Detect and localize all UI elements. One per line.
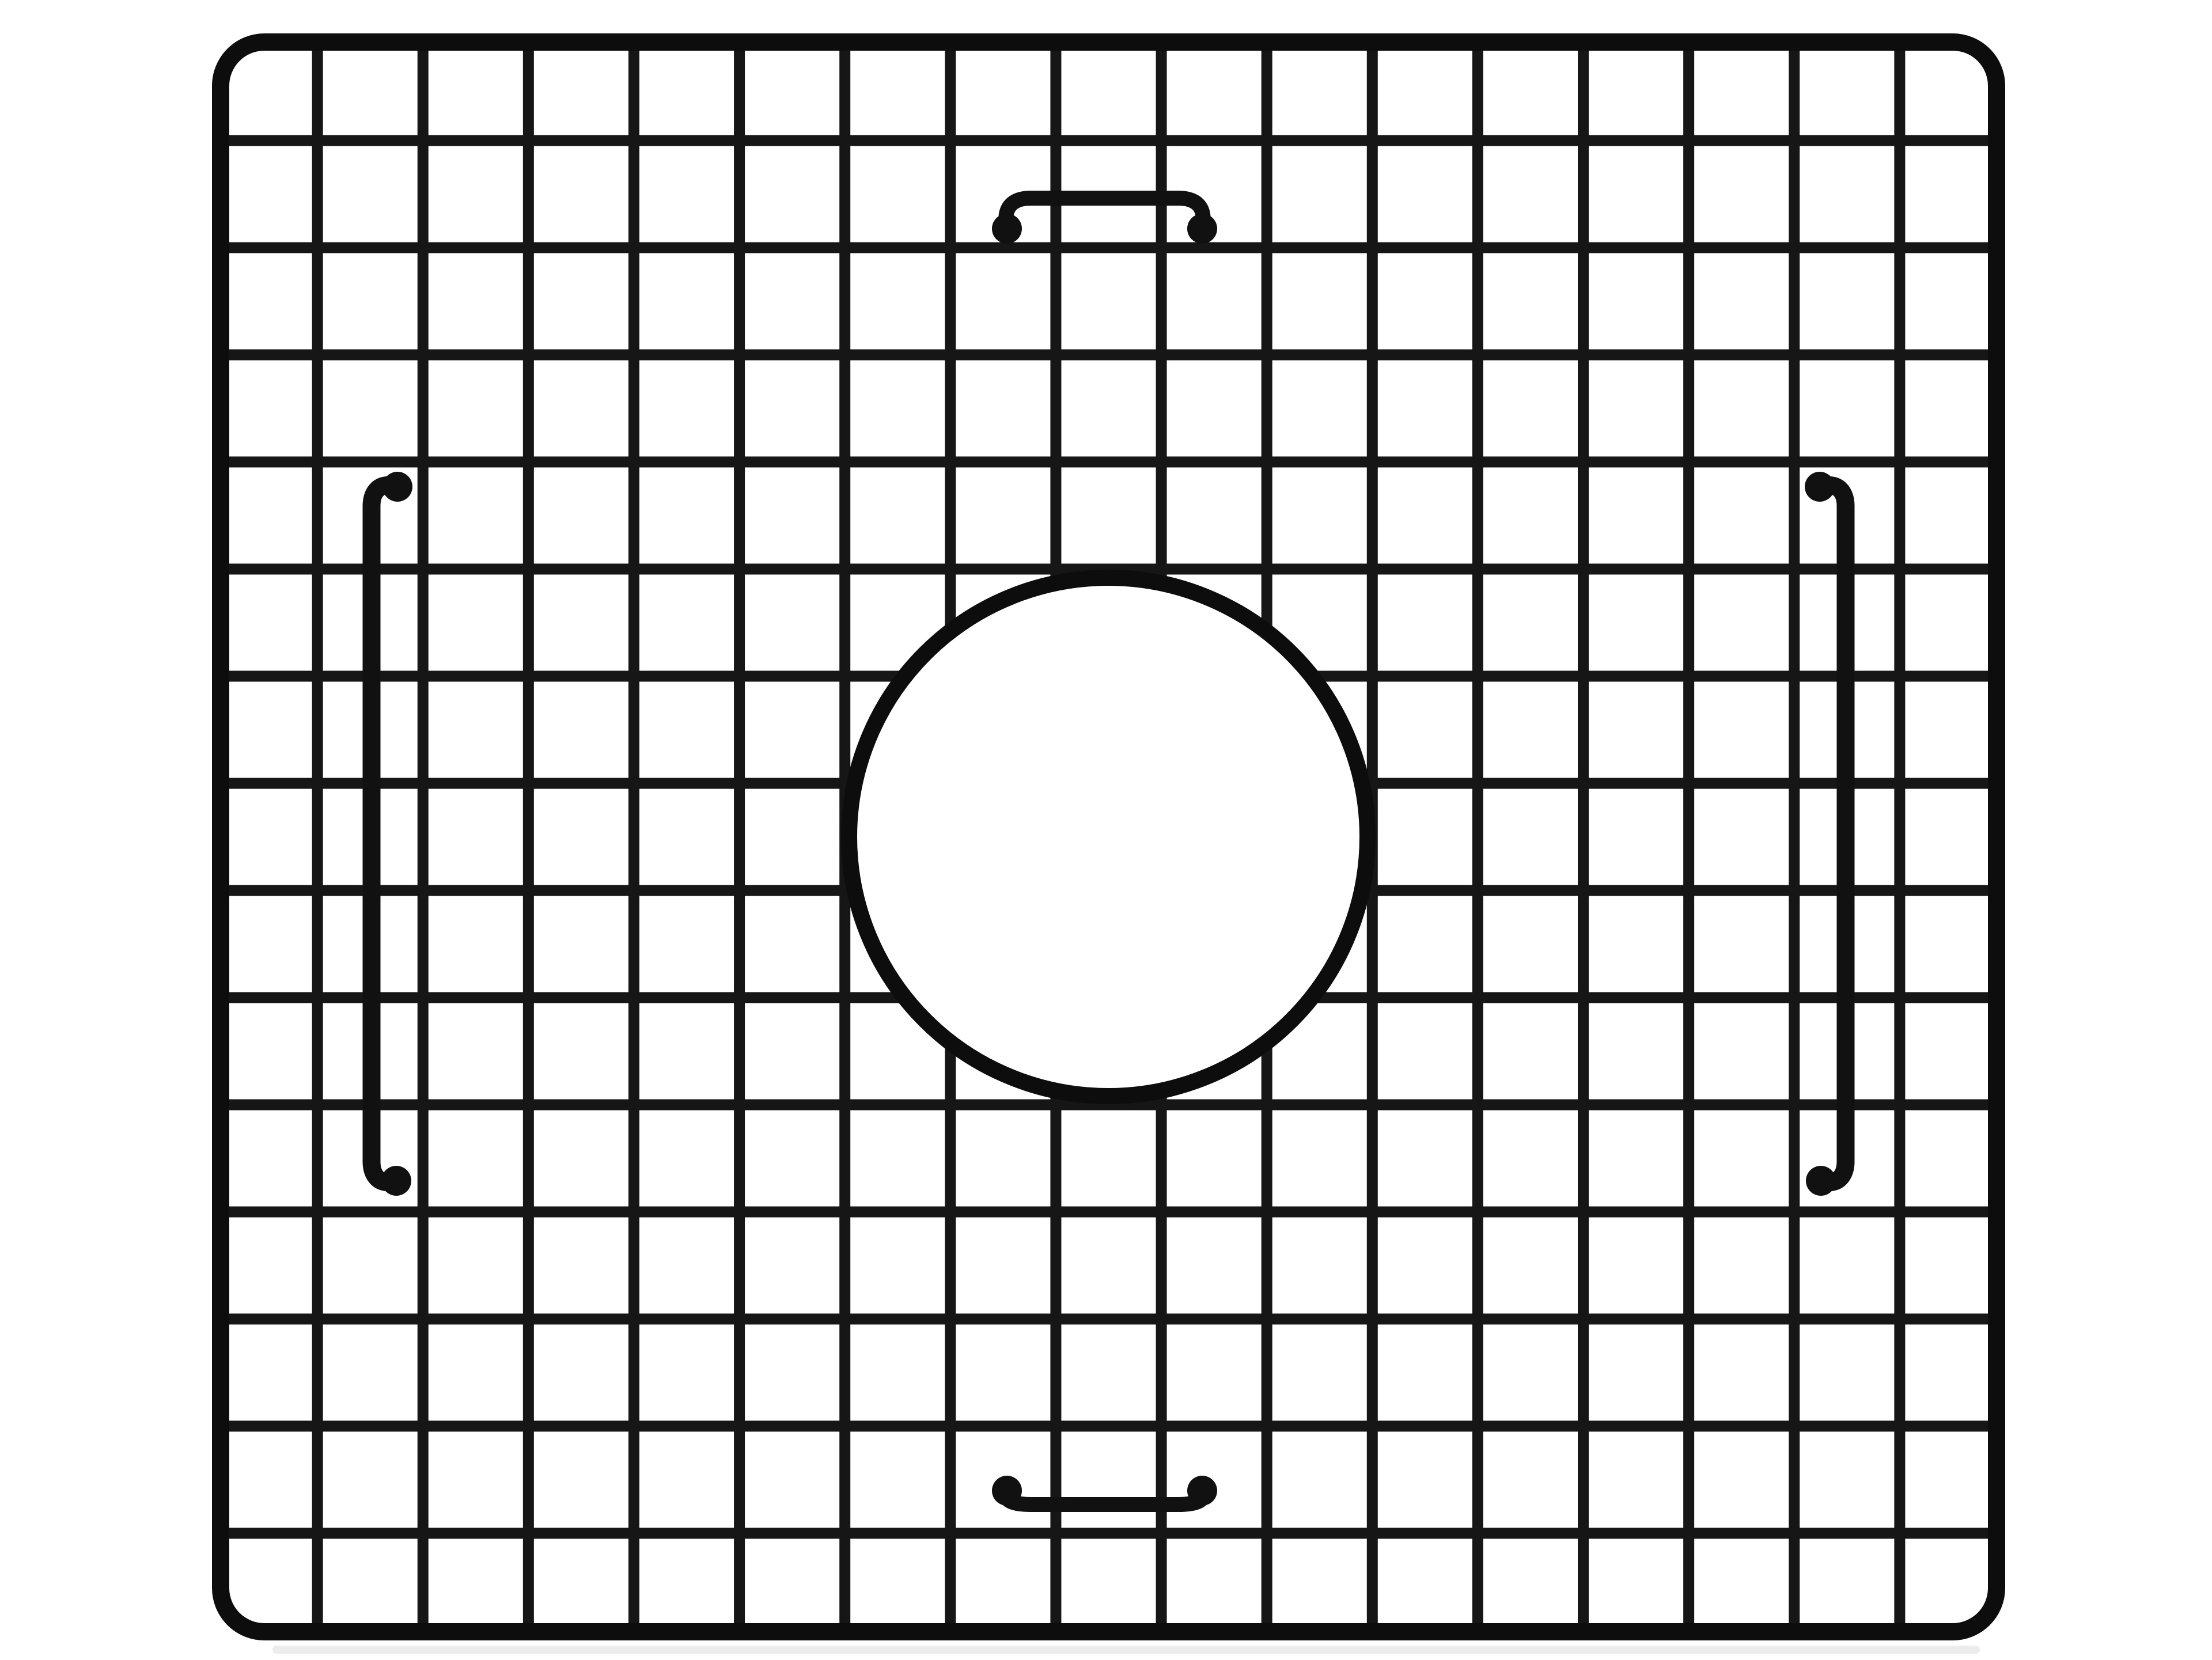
foot-ball-end xyxy=(1805,472,1835,502)
foot-ball-end xyxy=(992,1476,1022,1506)
foot-ball-end xyxy=(1187,1476,1217,1506)
foot-ball-end xyxy=(992,214,1022,244)
product-image-canvas xyxy=(0,0,2212,1660)
foot-ball-end xyxy=(1806,1166,1836,1196)
foot-ball-end xyxy=(382,472,412,502)
drain-opening-mask xyxy=(855,583,1362,1090)
sink-grid-product-image xyxy=(0,0,2212,1660)
foot-ball-end xyxy=(1187,214,1217,244)
foot-ball-end xyxy=(381,1166,411,1196)
